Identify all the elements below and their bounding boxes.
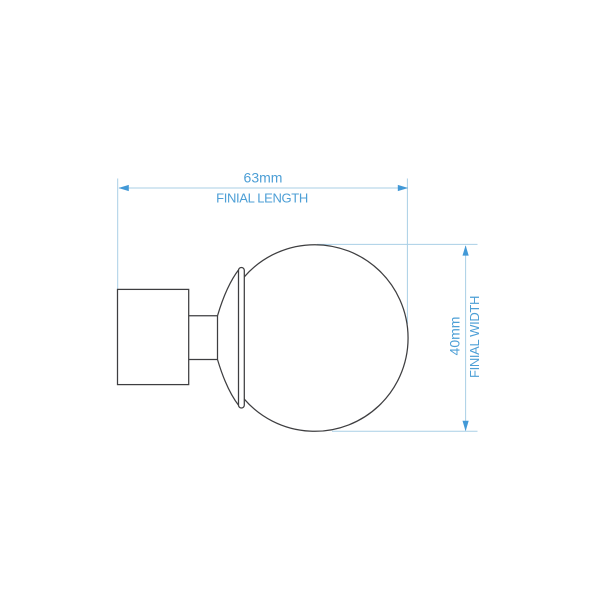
svg-text:FINIAL LENGTH: FINIAL LENGTH [216, 191, 308, 206]
svg-text:63mm: 63mm [244, 170, 283, 186]
svg-text:FINIAL WIDTH: FINIAL WIDTH [467, 296, 482, 378]
svg-text:40mm: 40mm [447, 317, 463, 356]
